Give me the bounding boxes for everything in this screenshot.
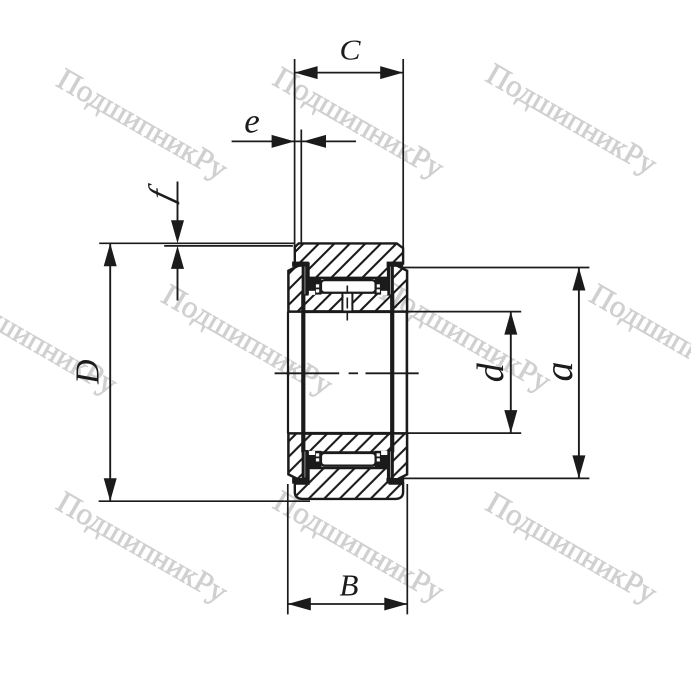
svg-text:D: D	[70, 359, 107, 385]
svg-text:C: C	[340, 35, 362, 67]
svg-text:d: d	[470, 362, 512, 382]
svg-text:B: B	[340, 568, 359, 603]
svg-text:a: a	[536, 362, 581, 382]
svg-text:e: e	[244, 102, 260, 141]
